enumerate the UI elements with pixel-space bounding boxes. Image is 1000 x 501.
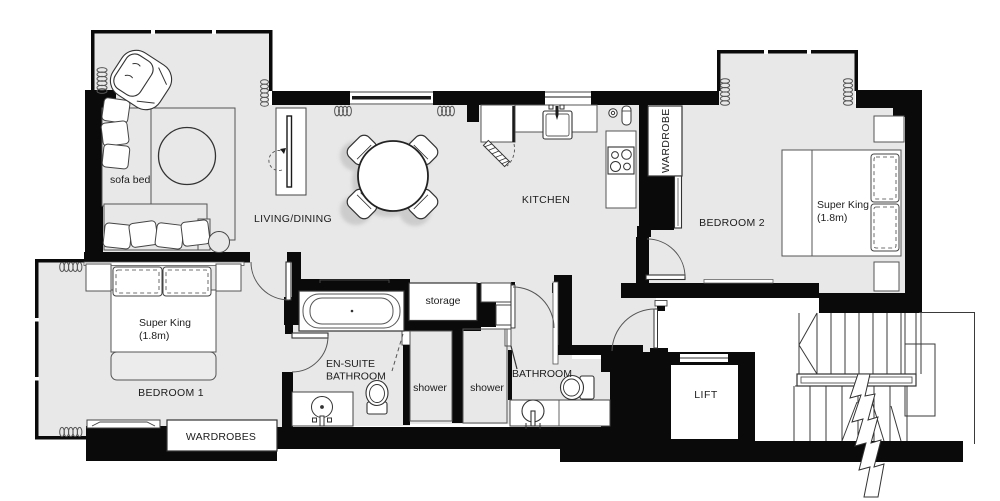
svg-text:WARDROBES: WARDROBES (186, 431, 256, 443)
svg-text:EN-SUITE: EN-SUITE (326, 358, 375, 370)
svg-text:shower: shower (413, 382, 447, 394)
svg-text:sofa bed: sofa bed (110, 174, 150, 186)
svg-text:storage: storage (425, 295, 460, 307)
svg-text:BATHROOM: BATHROOM (512, 368, 572, 380)
svg-text:Super King: Super King (817, 199, 869, 211)
svg-text:LIFT: LIFT (694, 389, 718, 401)
svg-text:BEDROOM 1: BEDROOM 1 (138, 387, 204, 399)
svg-text:LIVING/DINING: LIVING/DINING (254, 213, 332, 225)
svg-text:(1.8m): (1.8m) (139, 330, 169, 342)
svg-text:Super King: Super King (139, 317, 191, 329)
svg-text:BEDROOM 2: BEDROOM 2 (699, 217, 765, 229)
svg-text:WARDROBE: WARDROBE (660, 108, 672, 173)
svg-text:(1.8m): (1.8m) (817, 212, 847, 224)
svg-text:shower: shower (470, 382, 504, 394)
svg-text:BATHROOM: BATHROOM (326, 371, 386, 383)
svg-text:KITCHEN: KITCHEN (522, 194, 570, 206)
